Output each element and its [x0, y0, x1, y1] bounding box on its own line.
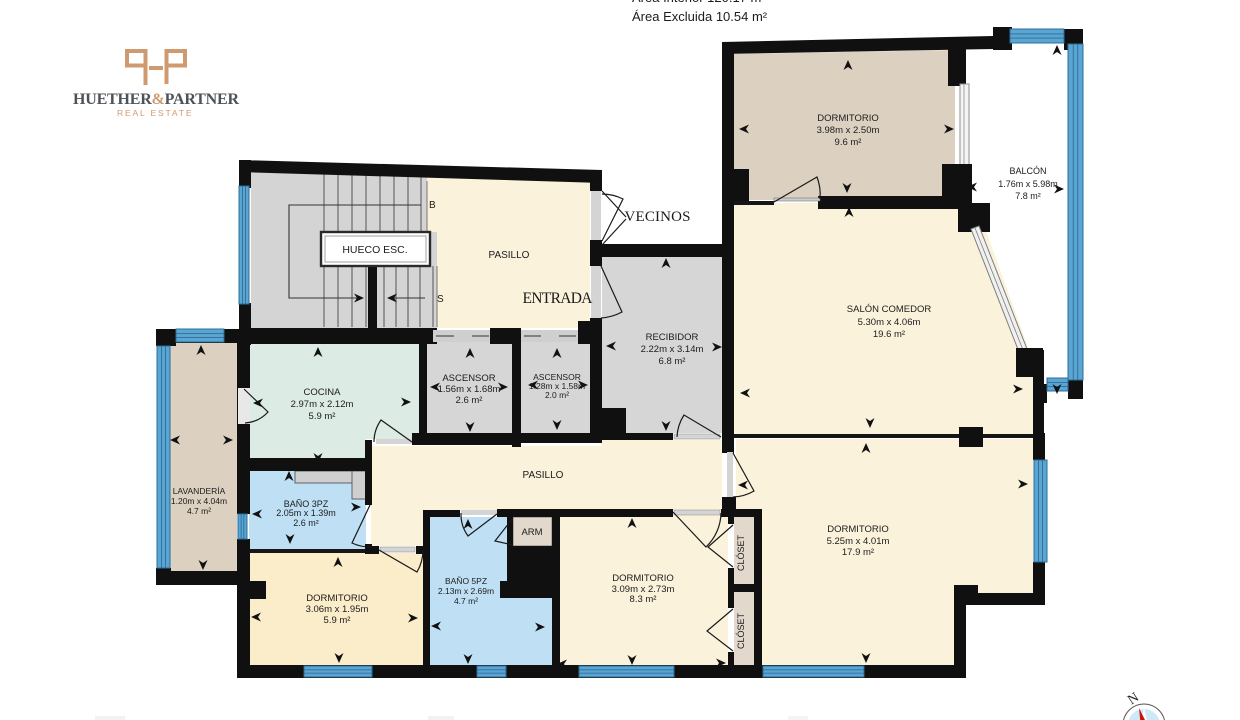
svg-text:1.20m x 4.04m: 1.20m x 4.04m — [171, 496, 227, 506]
svg-text:DORMITORIO: DORMITORIO — [306, 593, 368, 604]
svg-text:1.76m x 5.98m: 1.76m x 5.98m — [998, 179, 1058, 189]
svg-text:3.06m x 1.95m: 3.06m x 1.95m — [306, 604, 369, 615]
svg-text:17.9 m²: 17.9 m² — [842, 547, 874, 558]
svg-text:19.6 m²: 19.6 m² — [873, 329, 905, 340]
svg-text:5.30m x 4.06m: 5.30m x 4.06m — [858, 317, 921, 328]
svg-text:9.6 m²: 9.6 m² — [835, 137, 862, 148]
svg-text:Área Interior 120.17 m²: Área Interior 120.17 m² — [632, 0, 766, 5]
svg-text:1.56m x 1.68m: 1.56m x 1.68m — [438, 384, 501, 395]
svg-text:2.05m x 1.39m: 2.05m x 1.39m — [276, 508, 336, 518]
svg-text:6.8 m²: 6.8 m² — [659, 356, 686, 367]
svg-text:DORMITORIO: DORMITORIO — [827, 524, 889, 535]
svg-text:S: S — [437, 294, 444, 305]
svg-text:2.13m x 2.69m: 2.13m x 2.69m — [438, 586, 494, 596]
svg-text:RECIBIDOR: RECIBIDOR — [646, 332, 699, 343]
svg-text:2.6 m²: 2.6 m² — [293, 518, 319, 528]
svg-text:4.7 m²: 4.7 m² — [454, 596, 478, 606]
svg-text:ARM: ARM — [521, 527, 542, 538]
svg-text:PASILLO: PASILLO — [523, 470, 564, 481]
svg-text:HUECO ESC.: HUECO ESC. — [342, 244, 407, 256]
svg-text:CLÓSET: CLÓSET — [736, 534, 746, 571]
svg-text:CLÓSET: CLÓSET — [736, 612, 746, 649]
svg-text:Área Excluida 10.54 m²: Área Excluida 10.54 m² — [632, 9, 768, 24]
svg-text:4.7 m²: 4.7 m² — [187, 506, 211, 516]
svg-text:SALÓN COMEDOR: SALÓN COMEDOR — [847, 304, 932, 315]
svg-text:2.97m x 2.12m: 2.97m x 2.12m — [291, 399, 354, 410]
svg-text:5.9 m²: 5.9 m² — [324, 615, 351, 626]
svg-text:REAL ESTATE: REAL ESTATE — [117, 108, 195, 118]
svg-text:BAÑO 5PZ: BAÑO 5PZ — [445, 576, 487, 586]
svg-text:DORMITORIO: DORMITORIO — [817, 113, 879, 124]
svg-text:2.0 m²: 2.0 m² — [545, 390, 569, 400]
svg-text:2.22m x 3.14m: 2.22m x 3.14m — [641, 344, 704, 355]
svg-text:ENTRADA: ENTRADA — [523, 290, 594, 307]
svg-text:7.8 m²: 7.8 m² — [1015, 191, 1041, 201]
svg-text:BALCÓN: BALCÓN — [1009, 166, 1046, 176]
svg-text:COCINA: COCINA — [304, 387, 342, 398]
svg-text:5.25m x 4.01m: 5.25m x 4.01m — [827, 536, 890, 547]
svg-text:3.98m x 2.50m: 3.98m x 2.50m — [817, 125, 880, 136]
svg-text:ASCENSOR: ASCENSOR — [442, 373, 495, 384]
svg-text:VECINOS: VECINOS — [625, 209, 692, 225]
svg-text:8.3 m²: 8.3 m² — [630, 594, 657, 605]
svg-text:HUETHER&PARTNER: HUETHER&PARTNER — [73, 91, 239, 108]
svg-text:DORMITORIO: DORMITORIO — [612, 573, 674, 584]
svg-text:2.6 m²: 2.6 m² — [456, 395, 483, 406]
svg-text:5.9 m²: 5.9 m² — [309, 411, 336, 422]
svg-text:LAVANDERÍA: LAVANDERÍA — [173, 486, 226, 496]
svg-text:PASILLO: PASILLO — [489, 250, 530, 261]
svg-text:B: B — [429, 200, 436, 211]
